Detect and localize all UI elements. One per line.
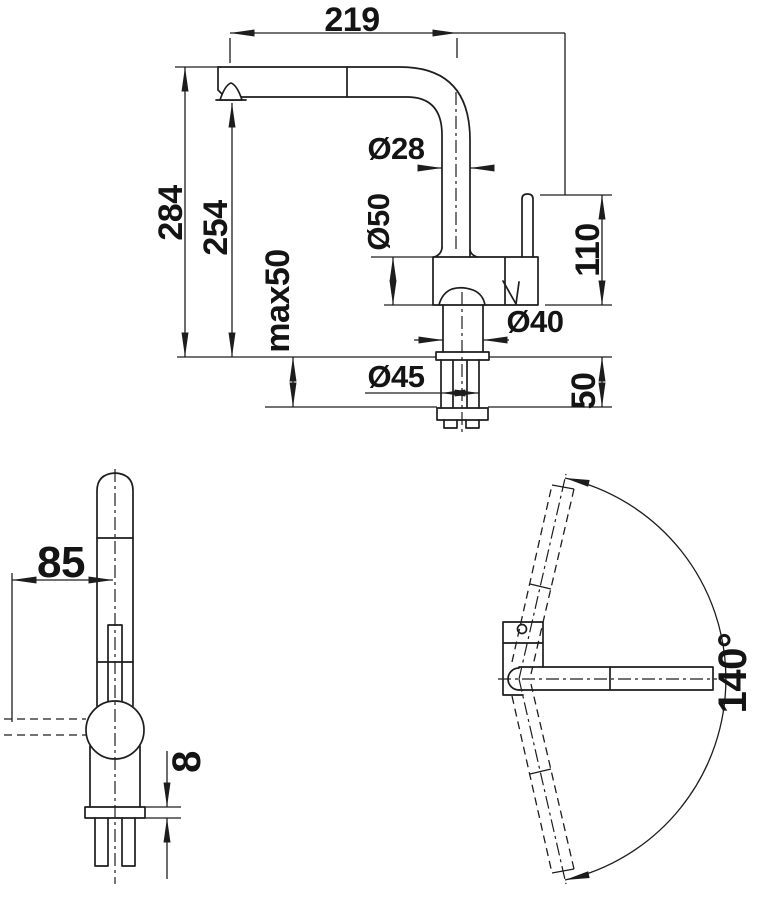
dim-shank-diameter-label: Ø40 [506,304,563,339]
dim-spout-reach-label: 219 [324,1,379,39]
dim-max-mounting-thickness: max50 [259,249,297,407]
dim-outlet-height-label: 254 [197,200,235,256]
dim-spout-diameter-label: Ø28 [367,131,424,166]
dim-max-mounting-thickness-label: max50 [259,249,297,352]
dim-handle-height: 110 [540,195,612,305]
dim-lever-reach-label: 85 [37,538,85,587]
dim-under-counter-depth: 50 [565,357,603,409]
plan-view: 140° [498,474,755,884]
spout-outer-edge [218,67,470,257]
technical-drawing-page: 219 284 254 max50 Ø28 [0,0,762,898]
dim-under-counter-depth-label: 50 [565,373,603,410]
dim-hole-diameter-label: Ø45 [367,359,424,394]
dim-body-diameter-label: Ø50 [361,193,396,250]
plan-down-centerline [519,679,566,884]
threaded-shank [441,360,479,408]
dim-total-height-label: 284 [152,185,190,241]
side-dimensions: 219 284 254 max50 Ø28 [152,1,612,409]
dim-spout-diameter: Ø28 [367,131,493,168]
dim-swivel-angle-label: 140° [711,633,755,714]
aerator-nozzle [220,83,242,100]
lever-hidden-lines [4,719,86,735]
mixer-body [433,257,538,305]
shank-tube [443,305,483,352]
dim-base-height: 8 [145,751,209,879]
front-view: 85 8 [4,469,209,884]
handle-lever [522,194,533,257]
faucet-plan-outline [498,474,717,884]
faucet-front-outline [4,469,145,884]
front-dimensions: 85 8 [12,538,209,879]
dim-outlet-height: 254 [197,103,235,357]
spout-inner-edge [232,97,442,248]
dim-shank-diameter: Ø40 [414,304,564,340]
faucet-dimension-drawing: 219 284 254 max50 Ø28 [0,0,762,898]
dim-body-diameter: Ø50 [361,193,433,305]
dim-handle-height-label: 110 [569,223,607,276]
side-view: 219 284 254 max50 Ø28 [152,1,612,432]
axis-centerlines [456,92,462,432]
dim-base-height-label: 8 [165,751,209,773]
plan-spout-down-position [512,684,574,873]
